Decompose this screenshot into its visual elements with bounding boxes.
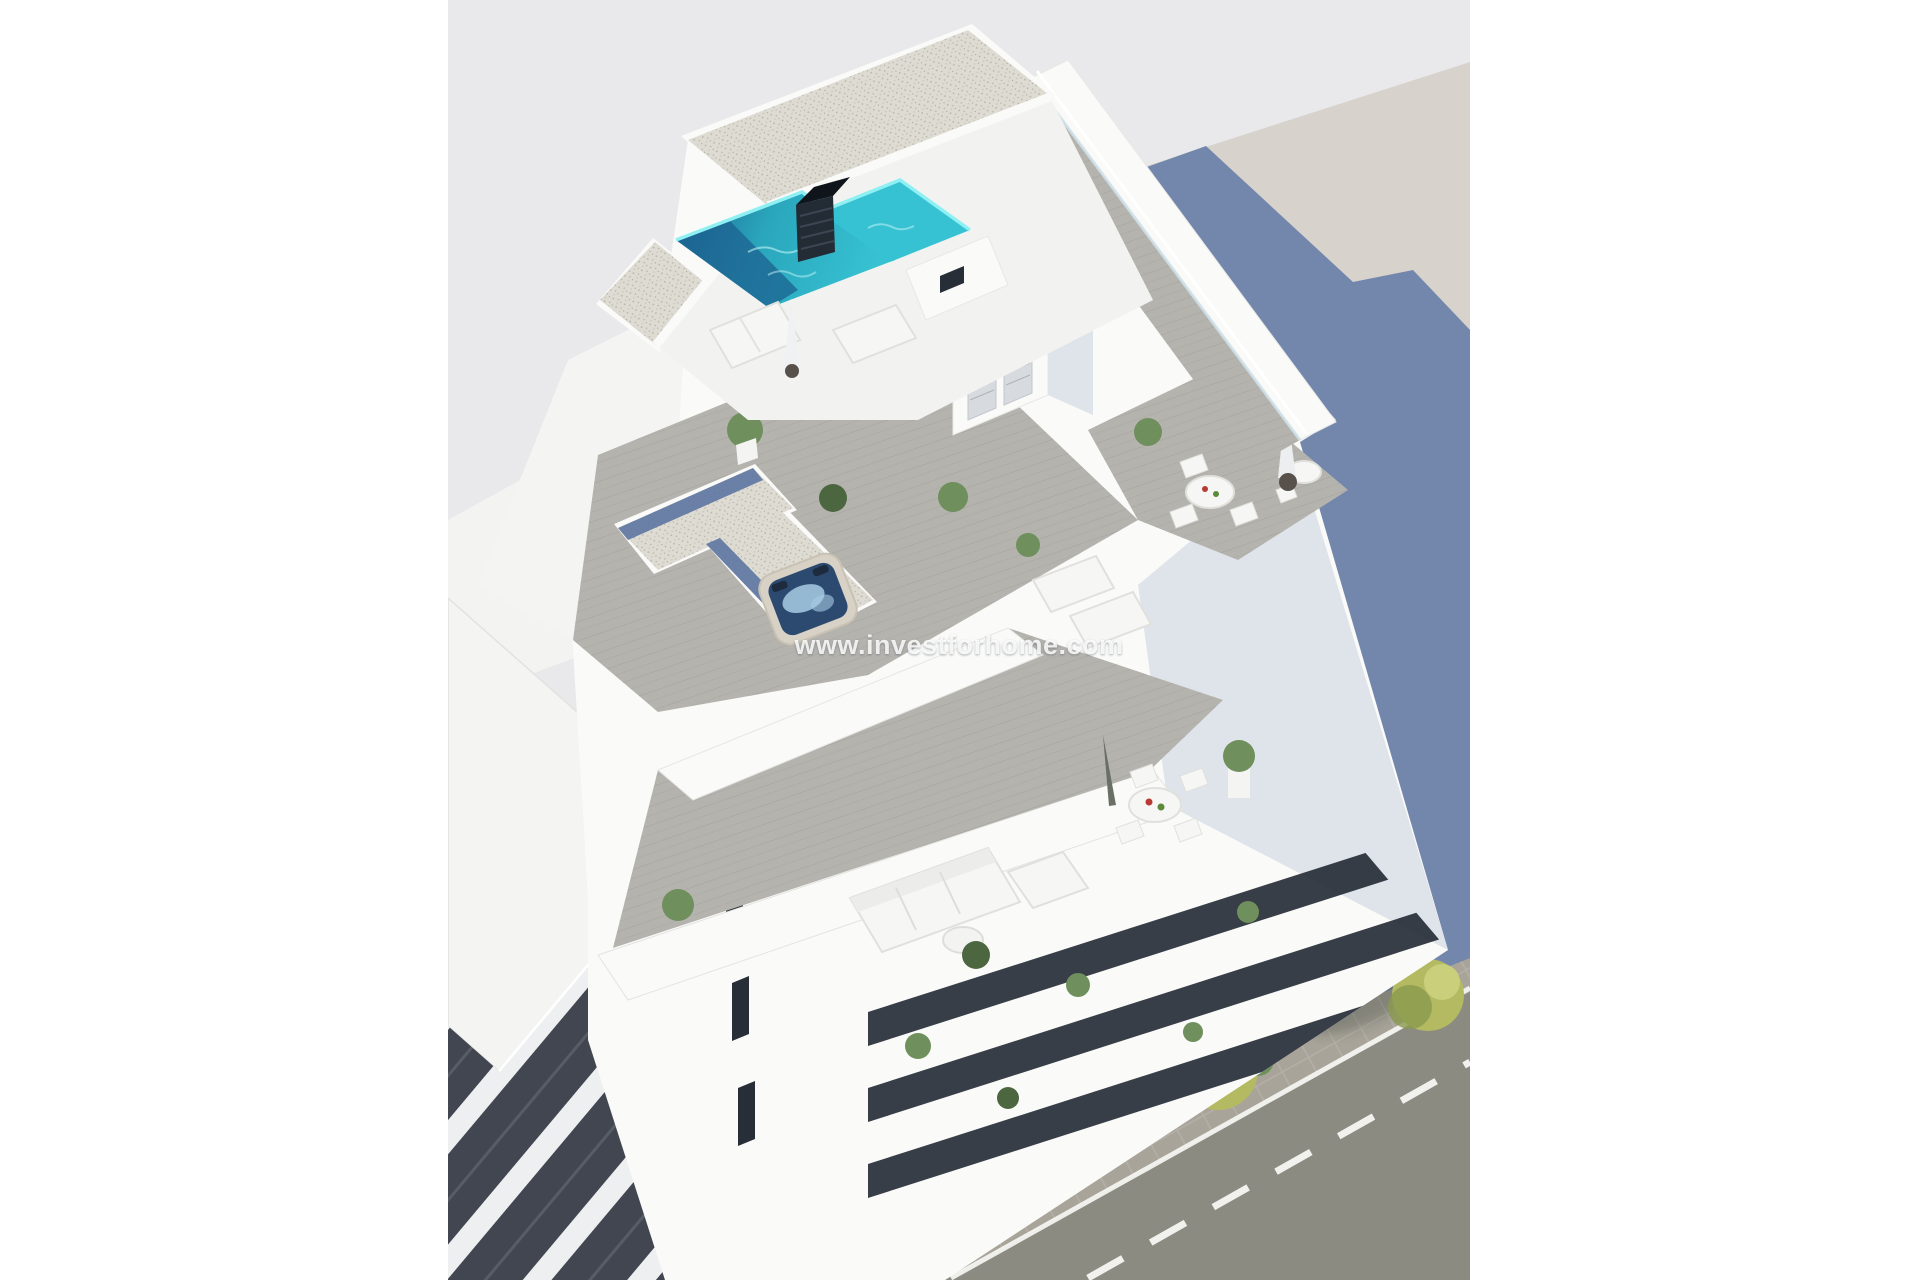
dining-table (1186, 476, 1234, 508)
balcony-plant (1183, 1022, 1203, 1042)
parasol-base (1279, 473, 1297, 491)
potted-plant (1016, 533, 1040, 557)
plant-pot (1228, 768, 1250, 798)
table-decor (1213, 491, 1219, 497)
render-canvas: www.investforhome.com (0, 0, 1920, 1280)
table-decor (1202, 486, 1208, 492)
terrace-plant (962, 941, 990, 969)
dining-table (1129, 788, 1181, 822)
potted-plant (1134, 418, 1162, 446)
parasol-base (785, 364, 799, 378)
balcony-plant (905, 1033, 931, 1059)
balcony-plant (997, 1087, 1019, 1109)
scene-svg (448, 0, 1470, 1280)
potted-plant (1223, 740, 1255, 772)
potted-plant (819, 484, 847, 512)
table-decor (1146, 799, 1153, 806)
balcony-plant (1237, 901, 1259, 923)
window-slit (738, 1081, 755, 1146)
table-decor (1158, 804, 1165, 811)
balcony-plant (1066, 973, 1090, 997)
terrace-plant (662, 889, 694, 921)
window-slit (732, 976, 749, 1041)
render-photo (448, 0, 1470, 1280)
potted-plant (938, 482, 968, 512)
